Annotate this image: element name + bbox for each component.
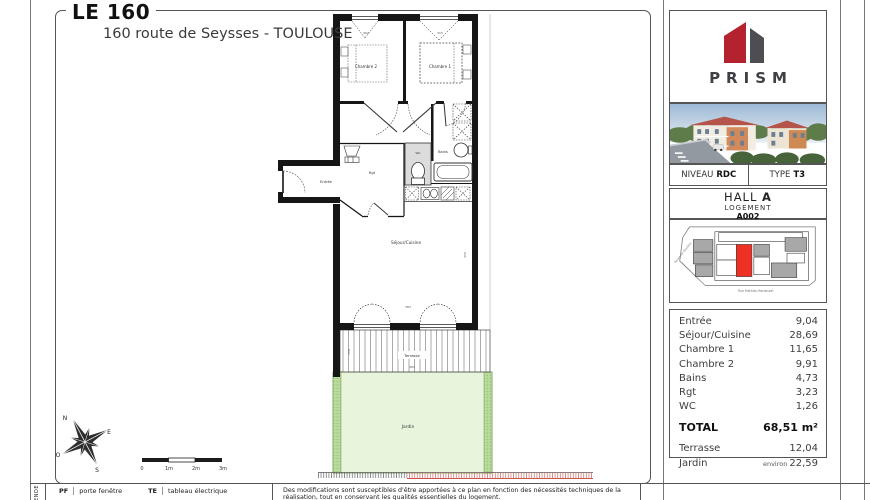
floor-plan-svg: Jardin Terrasse 150 384 xyxy=(55,8,650,482)
highlighted-unit xyxy=(736,244,752,276)
room-label-wc: WC xyxy=(415,151,420,155)
table-row: Rgt3,23 xyxy=(679,386,818,400)
dim-bottom: 383 xyxy=(405,305,411,309)
scale-tick-1: 1m xyxy=(165,466,173,472)
table-row: Séjour/Cuisine28,69 xyxy=(679,329,818,343)
room-label-terrasse: Terrasse xyxy=(403,353,420,358)
right-margin-line-2 xyxy=(864,0,865,500)
niveau-value: RDC xyxy=(716,170,736,180)
room-label-rgt: Rgt xyxy=(369,171,376,175)
storage-room: Rgt xyxy=(344,146,376,175)
plan-sheet: LE 160 160 route de Seysses - TOULOUSE xyxy=(0,0,870,500)
site-plan-svg: Route de Seysses Rue Mathieu Berdoulat xyxy=(670,220,826,302)
type-cell: TYPE T3 xyxy=(748,165,827,185)
legend-item: TE tableau électrique xyxy=(148,487,227,495)
right-margin-line-1 xyxy=(840,0,841,500)
room-label-chambre2: Chambre 2 xyxy=(355,64,378,69)
compass-rose-icon: N E S O xyxy=(55,407,120,477)
scale-tick-2: 2m xyxy=(192,466,200,472)
table-row: Terrasse 12,04 xyxy=(679,441,818,456)
compass-e: E xyxy=(107,429,111,436)
bottom-legend-strip: LÉGENDE PF porte fenêtre TE tableau élec… xyxy=(30,483,870,500)
hall-label: HALL xyxy=(724,190,757,204)
table-row: WC1,26 xyxy=(679,400,818,414)
entrance-door xyxy=(283,171,305,193)
level-cell: NIVEAU RDC xyxy=(670,165,748,185)
hall-box: HALL A LOGEMENT A002 xyxy=(669,188,827,219)
building-render-image xyxy=(670,104,826,163)
dim-top-right: 315 xyxy=(437,31,443,35)
room-label-bains: Bains xyxy=(438,150,448,154)
left-margin-line xyxy=(30,0,31,500)
wc-room: WC xyxy=(405,143,431,185)
building-photo xyxy=(669,103,827,164)
page-title: LE 160 xyxy=(66,0,156,24)
terrace-area: Terrasse 150 384 xyxy=(340,330,490,372)
compass-n: N xyxy=(63,415,68,422)
table-row: Chambre 111,65 xyxy=(679,343,818,357)
page-subtitle: 160 route de Seysses - TOULOUSE xyxy=(103,26,353,42)
table-row: Jardin environ22,59 xyxy=(679,456,818,472)
table-row: Entrée9,04 xyxy=(679,315,818,329)
room-label-jardin: Jardin xyxy=(401,424,415,430)
kitchen-counter xyxy=(404,186,472,202)
dim-right: 450 xyxy=(463,252,467,258)
level-type-row: NIVEAU RDC TYPE T3 xyxy=(669,164,827,186)
brand-name: PRISM xyxy=(676,69,826,87)
area-table: Entrée9,04 Séjour/Cuisine28,69 Chambre 1… xyxy=(669,309,827,458)
niveau-label: NIVEAU xyxy=(681,170,713,180)
table-row: Bains4,73 xyxy=(679,372,818,386)
garden-area: Jardin xyxy=(318,372,593,478)
dim-terrace-w: 384 xyxy=(409,365,415,369)
compass-s: S xyxy=(95,467,99,474)
site-plan-box: Route de Seysses Rue Mathieu Berdoulat xyxy=(669,219,827,303)
scale-bar: 0 1m 2m 3m xyxy=(140,458,227,472)
empty-cell xyxy=(640,484,870,500)
legend-cell: PF porte fenêtre TE tableau électrique xyxy=(45,484,272,500)
hall-value: A xyxy=(762,190,772,204)
type-value: T3 xyxy=(793,170,805,180)
compass-o: O xyxy=(56,452,61,459)
scale-tick-3: 3m xyxy=(219,466,227,472)
scale-tick-0: 0 xyxy=(140,466,143,472)
room-label-chambre1: Chambre 1 xyxy=(429,64,452,69)
type-label: TYPE xyxy=(769,170,790,180)
dim-top-left: 362 xyxy=(363,31,369,35)
room-label-entree: Entrée xyxy=(320,180,333,184)
table-row: Chambre 29,91 xyxy=(679,358,818,372)
table-total-row: TOTAL 68,51 m² xyxy=(679,420,818,435)
room-label-sejour: Séjour/Cuisine xyxy=(391,240,421,245)
prism-logo-icon xyxy=(716,19,780,65)
bathroom-fixtures: Bains xyxy=(434,104,472,181)
street-bottom-label: Rue Mathieu Berdoulat xyxy=(738,289,774,293)
dim-terrace-h: 150 xyxy=(347,349,351,355)
legend-side-label: LÉGENDE xyxy=(34,485,40,500)
info-panel: PRISM xyxy=(663,0,831,500)
brand-logo-box: PRISM xyxy=(669,10,827,103)
disclaimer-cell: Des modifications sont susceptibles d'êt… xyxy=(272,484,640,500)
legend-item: PF porte fenêtre xyxy=(59,487,122,495)
legend-side-cell: LÉGENDE xyxy=(30,484,45,500)
logement-label: LOGEMENT xyxy=(670,205,826,212)
